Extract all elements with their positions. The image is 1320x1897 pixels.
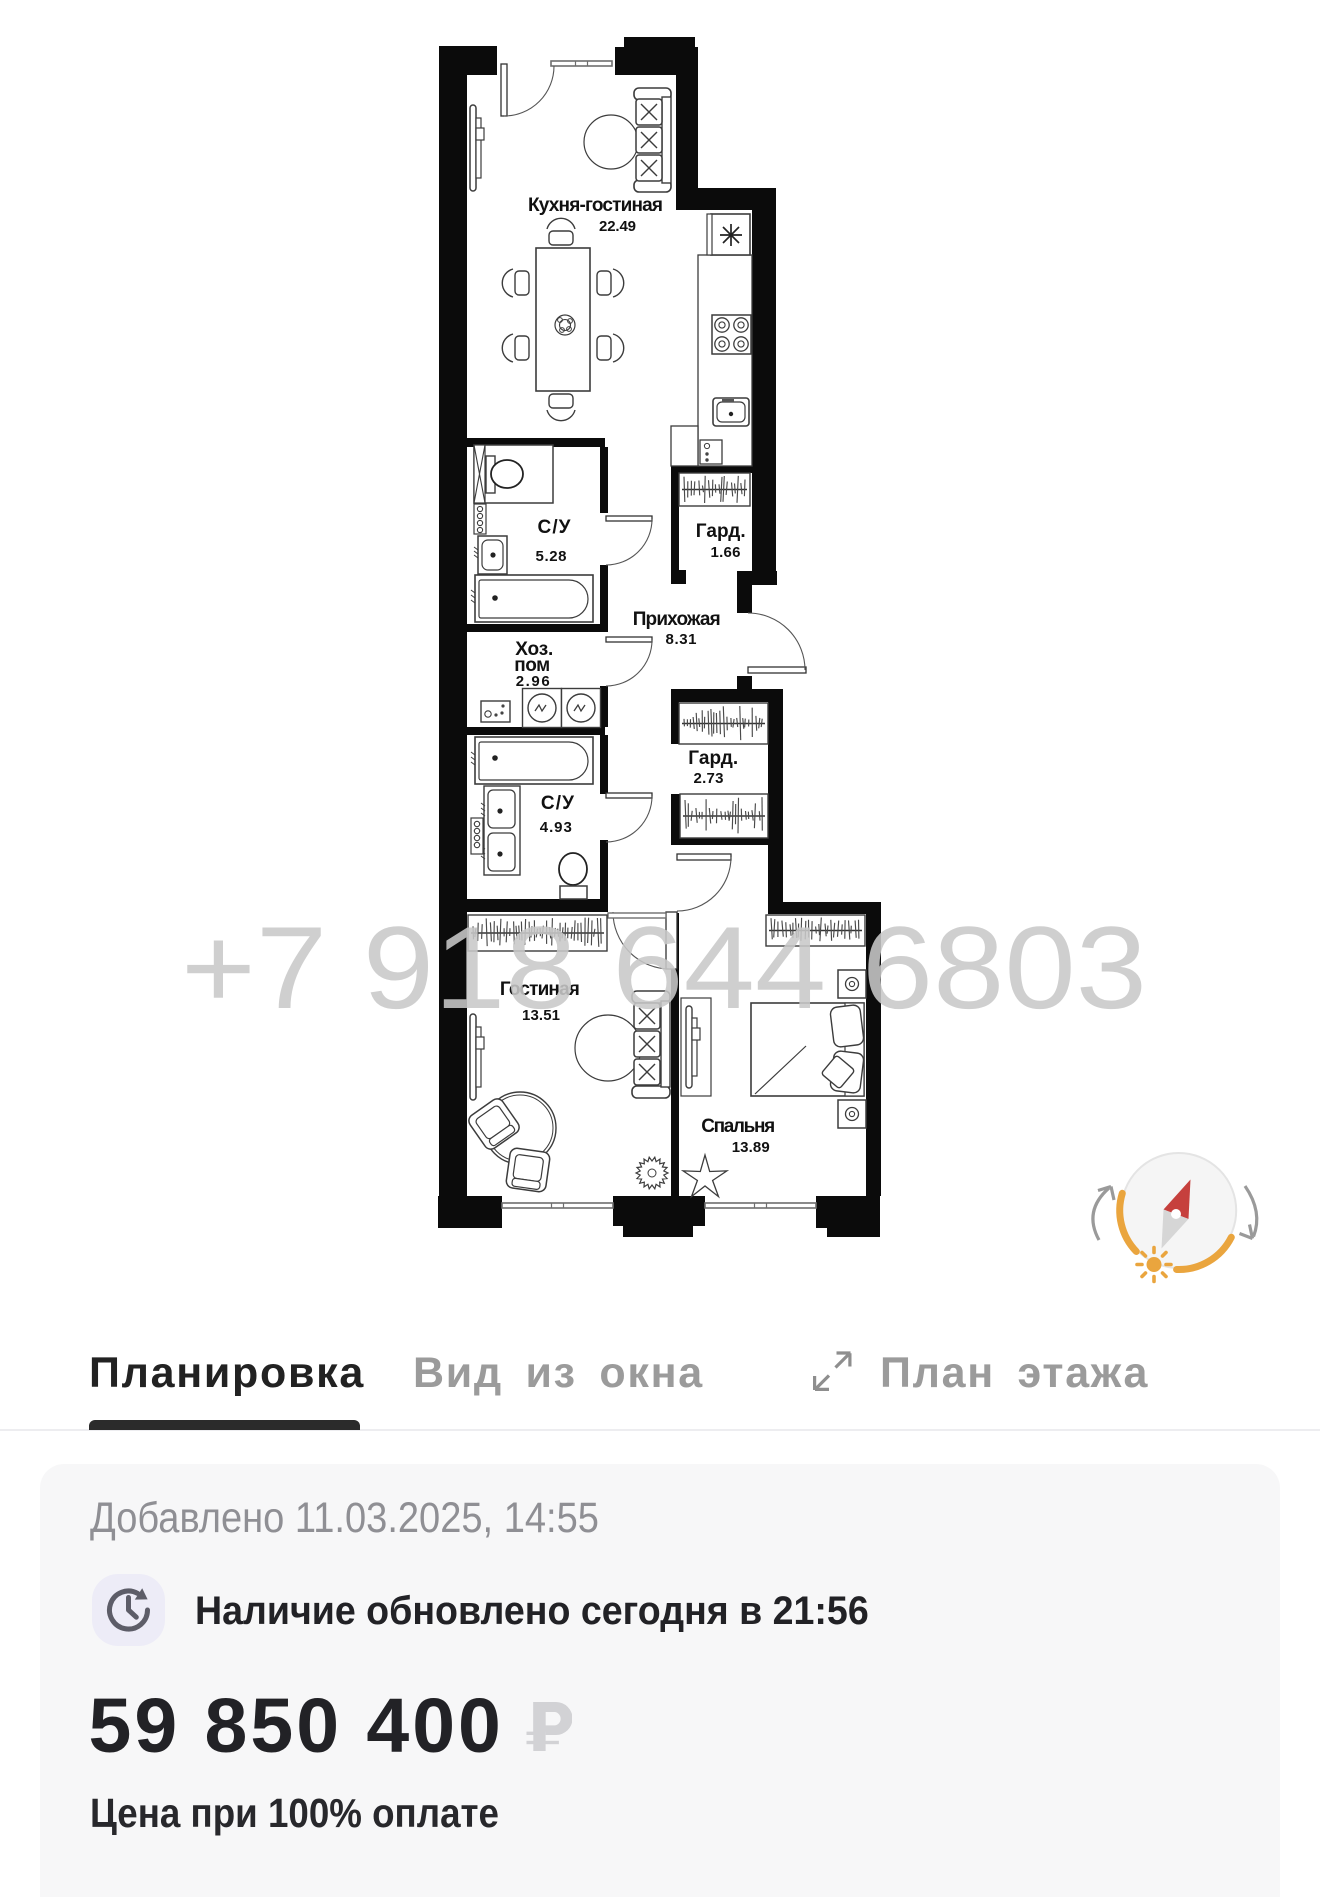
- svg-text:Кухня-гостиная: Кухня-гостиная: [528, 195, 663, 216]
- svg-text:С/У: С/У: [541, 793, 574, 814]
- svg-text:+7 918 644 6803: +7 918 644 6803: [181, 902, 1147, 1033]
- svg-text:2.73: 2.73: [694, 770, 724, 787]
- svg-text:13.89: 13.89: [732, 1139, 770, 1156]
- svg-text:2.96: 2.96: [516, 673, 550, 690]
- svg-text:Гард.: Гард.: [688, 748, 738, 769]
- svg-text:1.66: 1.66: [711, 544, 741, 561]
- svg-text:С/У: С/У: [538, 517, 571, 538]
- svg-text:Гард.: Гард.: [696, 521, 746, 542]
- svg-text:5.28: 5.28: [536, 548, 567, 565]
- svg-text:Спальня: Спальня: [701, 1116, 775, 1137]
- svg-text:22.49: 22.49: [599, 218, 636, 235]
- svg-text:Прихожая: Прихожая: [633, 609, 721, 630]
- svg-text:4.93: 4.93: [540, 819, 572, 836]
- svg-text:8.31: 8.31: [666, 631, 697, 648]
